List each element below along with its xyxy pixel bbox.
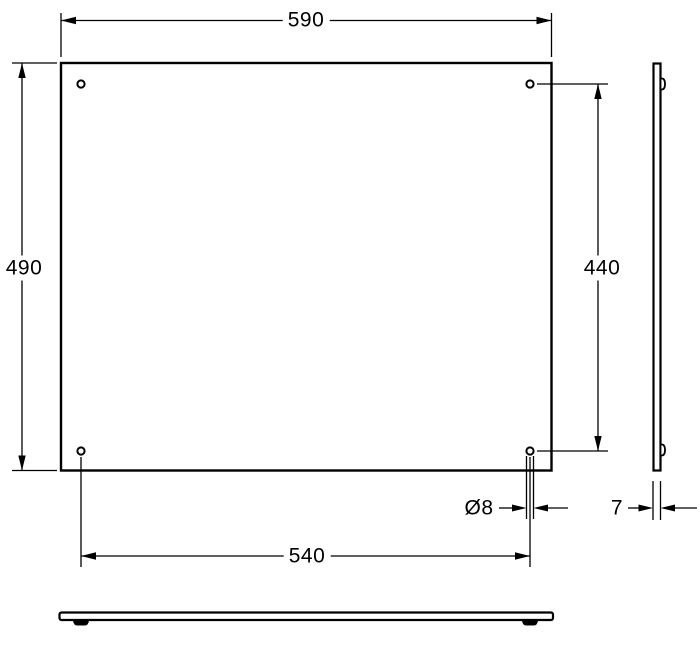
overall-height-label: 490 — [1, 256, 48, 281]
mounting-stud-top — [661, 79, 666, 90]
arrowhead-right — [515, 552, 530, 559]
front-view — [61, 63, 552, 471]
side-view-outline — [654, 64, 661, 471]
arrowhead-left — [661, 505, 676, 512]
mounting-hole-top-right — [526, 80, 533, 87]
dimension-panel-thickness — [628, 481, 697, 520]
bottom-view — [60, 613, 554, 626]
arrowhead-right — [537, 17, 552, 24]
mounting-hole-top-left — [77, 80, 84, 87]
overall-width-label: 590 — [283, 8, 330, 33]
arrowhead-left — [534, 505, 549, 512]
hole-diameter-label: Ø8 — [462, 496, 495, 521]
mounting-stud-bottom — [661, 445, 666, 456]
hole-vertical-spacing-label: 440 — [579, 256, 626, 281]
mounting-hole-bottom-right — [526, 447, 533, 454]
arrowhead-right — [512, 505, 527, 512]
arrowhead-left — [81, 552, 96, 559]
mounting-hole-bottom-left — [77, 447, 84, 454]
panel-thickness-label: 7 — [609, 496, 625, 521]
hole-horizontal-spacing-label: 540 — [284, 544, 331, 569]
arrowhead-up — [594, 84, 601, 99]
engineering-drawing: 590 490 440 540 Ø8 7 — [0, 0, 700, 660]
arrowhead-down — [594, 436, 601, 451]
side-view — [654, 64, 666, 471]
technical-drawing-canvas — [0, 0, 700, 660]
arrowhead-up — [18, 63, 25, 78]
mounting-stud-left — [73, 621, 89, 626]
mounting-stud-right — [522, 621, 538, 626]
arrowhead-right — [639, 505, 654, 512]
arrowhead-left — [61, 17, 76, 24]
arrowhead-down — [18, 456, 25, 471]
front-view-outline — [61, 63, 552, 471]
bottom-view-outline — [60, 613, 554, 621]
